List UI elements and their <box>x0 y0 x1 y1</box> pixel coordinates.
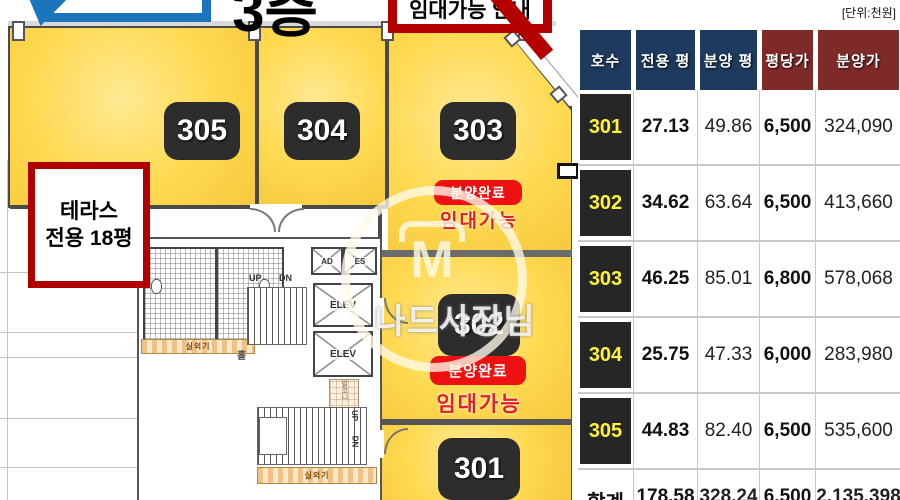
sold-badge-text: 분양완료 <box>448 360 507 381</box>
terrace-callout: 테라스 전용 18평 <box>28 162 150 288</box>
grid-hline <box>0 357 137 358</box>
room-305-number: 305 <box>177 114 227 148</box>
unit-note: [단위:천원] <box>842 4 896 21</box>
cell-exclusive-pyeong: 46.25 <box>634 242 697 317</box>
stair-up-label: UP <box>249 273 262 283</box>
stair-lower-landing <box>259 417 287 455</box>
elevator-2: ELEV <box>313 331 373 377</box>
cell-price-per-pyeong: 6,500 <box>760 166 815 241</box>
cell-room-no: 303 <box>578 242 633 317</box>
rentable-text-302: 임대가능 <box>430 388 528 418</box>
door-arc <box>278 208 304 232</box>
cell-room-no: 합계 <box>578 470 633 500</box>
room-no-chip: 305 <box>580 398 631 464</box>
table-total-row: 합계178.58328.246,5002,135,398 <box>578 470 900 500</box>
outdoor-unit-strip-lower: 실외기 <box>257 467 377 484</box>
cell-sale-price: 2,135,398 <box>816 470 900 500</box>
cell-sale-price: 578,068 <box>816 242 900 317</box>
table-row: 30346.2585.016,800578,068 <box>578 242 900 317</box>
table-header-row: 호수전용 평분양 평평당가분양가 <box>578 28 900 92</box>
room-304-number: 304 <box>297 114 347 148</box>
grid-hline <box>0 332 137 333</box>
cell-room-no: 301 <box>578 90 633 165</box>
rentable-label: 임대가능 <box>436 393 521 416</box>
wall-304-303 <box>385 28 389 207</box>
cell-exclusive-pyeong: 44.83 <box>634 394 697 469</box>
table-body: 30127.1349.866,500324,09030234.6263.646,… <box>578 90 900 500</box>
table-row: 30425.7547.336,000283,980 <box>578 318 900 393</box>
room-302-label: 302 <box>438 294 520 356</box>
sold-badge-text: 분양완료 <box>450 183 506 203</box>
grid-vline <box>7 160 8 500</box>
rentable-text-303: 임대가능 <box>434 206 524 233</box>
wall-302-301 <box>380 419 572 425</box>
cell-price-per-pyeong: 6,500 <box>760 394 815 469</box>
blue-callout-box <box>45 0 211 22</box>
stair-dn-label: DN <box>350 436 359 448</box>
terrace-line2: 전용 18평 <box>45 225 132 252</box>
cell-price-per-pyeong: 6,000 <box>760 318 815 393</box>
cell-sale-price: 535,600 <box>816 394 900 469</box>
ad-label: AD <box>320 257 334 266</box>
cell-price-per-pyeong: 6,800 <box>760 242 815 317</box>
cell-room-no: 305 <box>578 394 633 469</box>
hall-label: 홀 <box>237 347 246 362</box>
table-row: 30234.6263.646,500413,660 <box>578 166 900 241</box>
cell-exclusive-pyeong: 178.58 <box>634 470 697 500</box>
wall-305-304 <box>255 28 259 207</box>
es-shaft: ES <box>343 247 377 275</box>
room-301-label: 301 <box>438 438 520 500</box>
ad-shaft: AD <box>311 247 343 275</box>
cell-room-no: 302 <box>578 166 633 241</box>
cell-supply-pyeong: 47.33 <box>698 318 759 393</box>
stair-dn-label: DN <box>279 273 292 283</box>
cell-supply-pyeong: 85.01 <box>698 242 759 317</box>
stair-up-label: UP <box>350 410 359 421</box>
room-301-number: 301 <box>454 452 504 486</box>
rentable-label: 임대가능 <box>440 211 518 232</box>
cell-exclusive-pyeong: 27.13 <box>634 90 697 165</box>
table-header-cell: 분양가 <box>816 28 900 92</box>
cell-supply-pyeong: 63.64 <box>698 166 759 241</box>
room-303-label: 303 <box>440 102 516 160</box>
cell-exclusive-pyeong: 34.62 <box>634 166 697 241</box>
floorplan-price-sheet: 305 304 303 302 301 분양완료 임대가능 분양완료 임대가능 … <box>0 0 900 500</box>
es-label: ES <box>354 257 367 266</box>
cell-sale-price: 283,980 <box>816 318 900 393</box>
cell-exclusive-pyeong: 25.75 <box>634 318 697 393</box>
room-302-number: 302 <box>454 308 504 342</box>
table-row: 30544.8382.406,500535,600 <box>578 394 900 469</box>
outdoor-unit-label: 실외기 <box>185 341 210 352</box>
cell-sale-price: 324,090 <box>816 90 900 165</box>
room-303-number: 303 <box>453 114 503 148</box>
table-row: 30127.1349.866,500324,090 <box>578 90 900 165</box>
table-header-cell: 분양 평 <box>698 28 759 92</box>
cell-supply-pyeong: 49.86 <box>698 90 759 165</box>
elevator-label: ELEV <box>329 349 357 360</box>
outdoor-unit-label: 실외기 <box>304 470 329 481</box>
table-header-cell: 전용 평 <box>634 28 697 92</box>
cell-room-no: 304 <box>578 318 633 393</box>
restroom-left <box>143 247 217 341</box>
cell-supply-pyeong: 82.40 <box>698 394 759 469</box>
room-304-label: 304 <box>284 102 360 160</box>
grid-hline <box>0 467 137 468</box>
room-no-chip: 303 <box>580 246 631 312</box>
column-notch <box>12 21 25 41</box>
table-header-cell: 평당가 <box>760 28 815 92</box>
cell-supply-pyeong: 328.24 <box>698 470 759 500</box>
price-table: [단위:천원] 호수전용 평분양 평평당가분양가 30127.1349.866,… <box>578 0 900 500</box>
sold-badge-302: 분양완료 <box>430 356 526 385</box>
cell-sale-price: 413,660 <box>816 166 900 241</box>
cell-price-per-pyeong: 6,500 <box>760 90 815 165</box>
floor-title: 3층 <box>205 0 345 48</box>
elevator-1: ELEV <box>313 283 373 327</box>
restroom-fixture <box>151 279 162 294</box>
sold-badge-303: 분양완료 <box>434 180 522 205</box>
room-no-chip: 301 <box>580 94 631 160</box>
stair-upper <box>247 287 307 345</box>
cell-price-per-pyeong: 6,500 <box>760 470 815 500</box>
room-305-label: 305 <box>164 102 240 160</box>
room-no-chip: 304 <box>580 322 631 388</box>
wall-303-302 <box>380 250 572 257</box>
door-gap-302 <box>378 298 384 328</box>
door-arc <box>250 208 276 232</box>
table-header-cell: 호수 <box>578 28 633 92</box>
grid-hline <box>0 418 137 419</box>
core-area: 실외기 UP DN 홀 AD ES ELEV ELEV 발코니 UP DN 실외… <box>137 237 382 500</box>
balcony-label: 발코니 <box>339 380 349 401</box>
elevator-label: ELEV <box>329 300 357 311</box>
terrace-line1: 테라스 <box>60 198 118 225</box>
wall-fixture <box>557 163 579 179</box>
room-no-chip: 302 <box>580 170 631 236</box>
